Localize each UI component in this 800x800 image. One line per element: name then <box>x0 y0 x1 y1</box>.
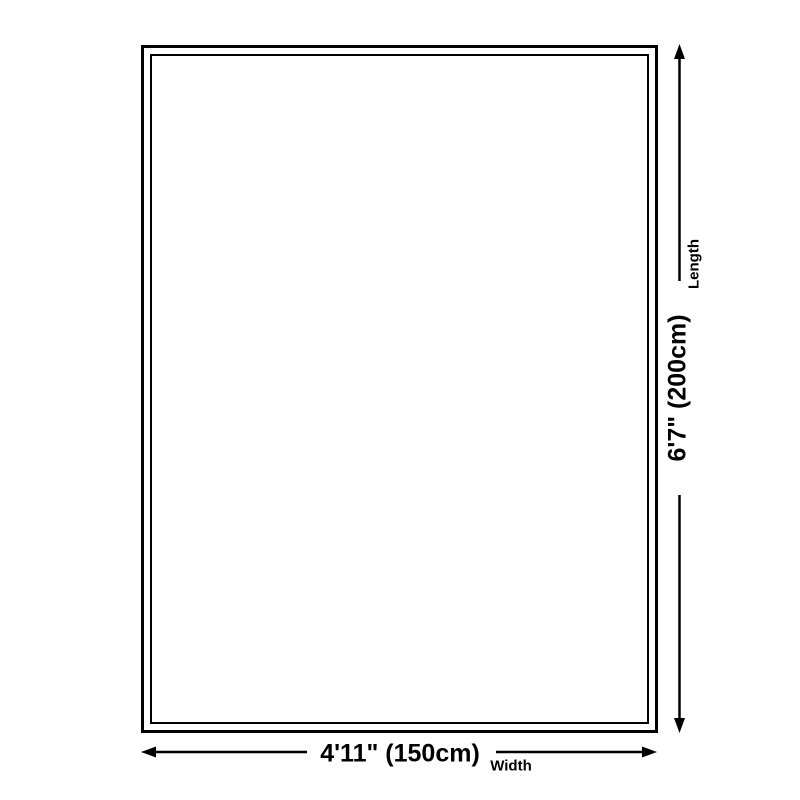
arrow-left-icon <box>141 747 156 758</box>
width-dimension-value: 4'11" (150cm) <box>314 740 486 769</box>
length-dimension-value: 6'7" (200cm) <box>664 308 693 467</box>
rug-dimension-diagram: 6'7" (200cm) Length 4'11" (150cm) Width <box>0 0 800 800</box>
arrow-right-icon <box>642 747 657 758</box>
length-dimension-label: Length <box>687 239 702 289</box>
width-dimension-label: Width <box>490 759 532 774</box>
arrow-down-icon <box>674 718 685 733</box>
arrow-up-icon <box>674 44 685 59</box>
